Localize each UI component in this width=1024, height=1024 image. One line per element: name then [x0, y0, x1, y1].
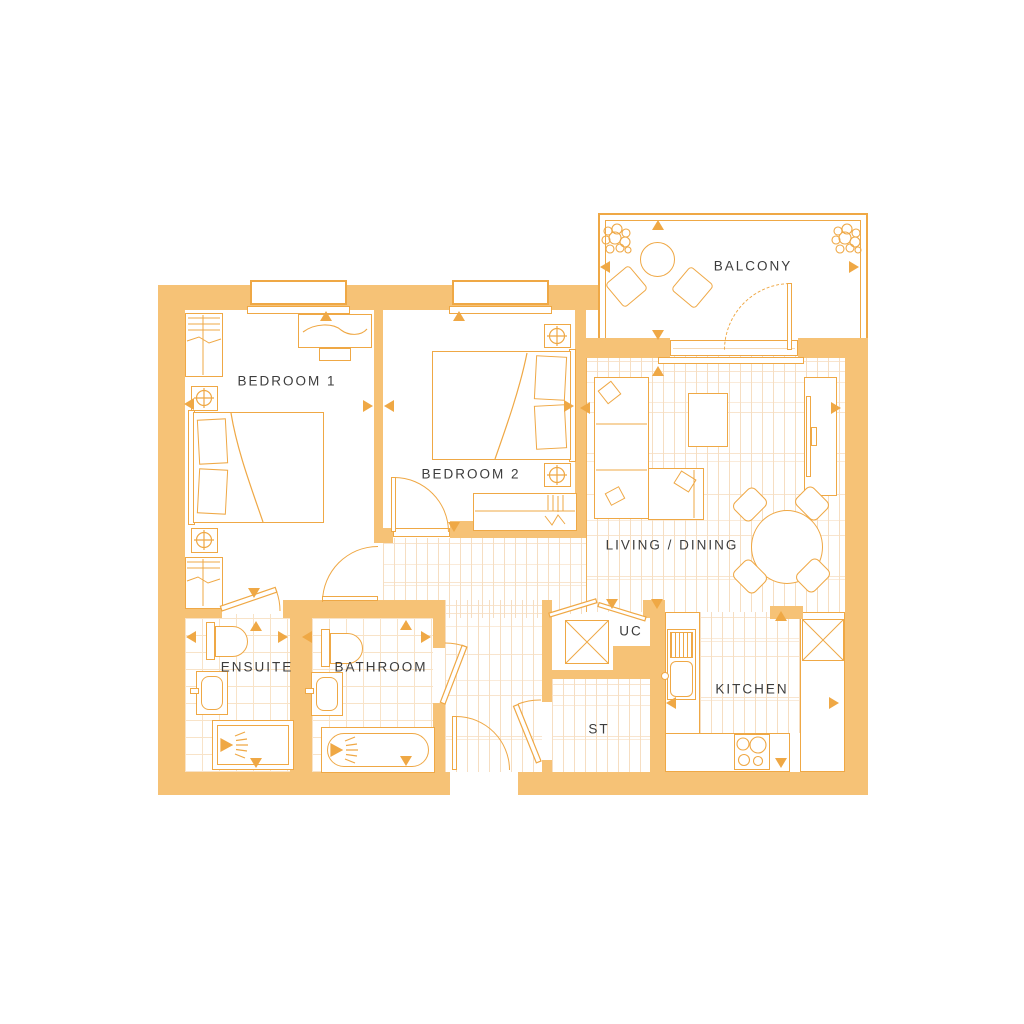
- balcony-table: [640, 242, 675, 277]
- sofa-seat: [648, 468, 704, 520]
- bedroom1-door-arc: [322, 546, 378, 602]
- patio-threshold: [658, 357, 804, 364]
- bedroom1-wardrobe-bottom: [185, 557, 223, 609]
- bedroom1-bedside-top: [191, 386, 218, 411]
- bathroom-toilet-cistern: [321, 629, 330, 667]
- dimension-arrow: [278, 631, 288, 643]
- bedroom1-desk-drawer: [319, 348, 351, 361]
- washer-unit: [565, 620, 609, 664]
- dimension-arrow: [448, 522, 460, 532]
- ensuite-toilet-cistern: [206, 622, 215, 660]
- dimension-arrow: [652, 366, 664, 376]
- wall-kitchen-left: [650, 600, 665, 772]
- kitchen-floor: [700, 612, 800, 733]
- fridge-unit: [802, 619, 844, 661]
- bedroom2-door-arc: [394, 477, 449, 532]
- bedroom2-bedside-top: [544, 324, 571, 348]
- wall-bedroom-divider: [374, 310, 383, 543]
- coffee-table: [688, 393, 728, 447]
- dimension-arrow: [831, 402, 841, 414]
- room-label-kitchen: KITCHEN: [715, 682, 788, 697]
- room-label-uc: UC: [619, 624, 643, 639]
- bathtub-inner: [327, 733, 429, 767]
- dimension-arrow: [829, 697, 839, 709]
- kitchen-sink-bowl: [670, 661, 693, 697]
- room-label-bathroom: BATHROOM: [335, 660, 428, 675]
- dimension-arrow: [666, 697, 676, 709]
- bedroom2-window: [452, 280, 549, 305]
- wall-uc-chunk: [613, 646, 653, 678]
- kitchen-sink-tap: [661, 672, 669, 680]
- wall-living-top-right: [798, 338, 845, 358]
- dimension-arrow: [651, 599, 663, 609]
- wall-bathroom-right-top: [433, 600, 445, 648]
- wall-living-top-left: [577, 338, 670, 358]
- dimension-arrow: [400, 620, 412, 630]
- room-label-balcony: BALCONY: [714, 259, 793, 274]
- tv-bracket: [811, 427, 817, 446]
- ensuite-basin-tap: [190, 688, 199, 694]
- dimension-arrow: [580, 402, 590, 414]
- living-floor-edge: [586, 356, 587, 612]
- dimension-arrow: [775, 758, 787, 768]
- room-label-ensuite: ENSUITE: [221, 660, 294, 675]
- room-label-st: ST: [588, 722, 609, 737]
- dimension-arrow: [248, 588, 260, 598]
- kitchen-counter-bottom: [665, 733, 790, 772]
- balcony-door: [787, 283, 792, 350]
- dimension-arrow: [775, 611, 787, 621]
- room-label-living-dining: LIVING / DINING: [606, 538, 739, 553]
- dimension-arrow: [184, 398, 194, 410]
- floorplan-canvas: BEDROOM 1 BEDROOM 2 LIVING / DINING KITC…: [0, 0, 1024, 1024]
- dimension-arrow: [600, 261, 610, 273]
- dimension-arrow: [250, 621, 262, 631]
- bedroom2-bedside-bottom: [544, 463, 571, 487]
- room-label-bedroom1: BEDROOM 1: [237, 374, 336, 389]
- dimension-arrow: [652, 330, 664, 340]
- kitchen-sink-drainer: [670, 632, 693, 658]
- dimension-arrow: [186, 631, 196, 643]
- bedroom1-wardrobe-top: [185, 313, 223, 377]
- ensuite-door-arc: [277, 591, 281, 611]
- bedroom1-window: [250, 280, 347, 305]
- entrance-door: [452, 716, 457, 770]
- dimension-arrow: [453, 311, 465, 321]
- dimension-arrow: [400, 756, 412, 766]
- bedroom1-window-sill: [247, 306, 350, 314]
- dimension-arrow: [564, 400, 574, 412]
- bedroom1-pillow-2: [197, 468, 228, 514]
- dimension-arrow: [606, 599, 618, 609]
- bedroom1-door: [322, 596, 378, 601]
- bathroom-basin-tap: [305, 688, 314, 694]
- dimension-arrow: [363, 400, 373, 412]
- wall-left: [158, 285, 185, 795]
- dimension-arrow: [302, 631, 312, 643]
- bedroom2-pillow-2: [534, 404, 567, 450]
- dimension-arrow: [652, 220, 664, 230]
- bedroom1-bedside-bottom: [191, 528, 218, 553]
- dimension-arrow: [250, 758, 262, 768]
- bedroom1-pillow-1: [197, 418, 228, 464]
- wall-bottom-left: [158, 772, 450, 795]
- bedroom2-door: [391, 477, 396, 532]
- dimension-arrow: [849, 261, 859, 273]
- bedroom2-pillow-1: [534, 355, 567, 401]
- room-label-bedroom2: BEDROOM 2: [421, 467, 520, 482]
- hob: [734, 734, 770, 770]
- wall-right: [845, 338, 868, 795]
- wall-storage-left-top: [542, 600, 552, 702]
- wall-bottom-right: [518, 772, 868, 795]
- bathroom-basin-bowl: [316, 677, 338, 711]
- wall-storage-left-stub: [542, 760, 552, 772]
- ensuite-toilet-bowl: [215, 626, 248, 657]
- ensuite-basin-bowl: [201, 676, 223, 710]
- dimension-arrow: [384, 400, 394, 412]
- dimension-arrow: [421, 631, 431, 643]
- bedroom1-desk: [298, 314, 372, 348]
- dimension-arrow: [320, 311, 332, 321]
- bedroom2-wardrobe: [473, 493, 577, 531]
